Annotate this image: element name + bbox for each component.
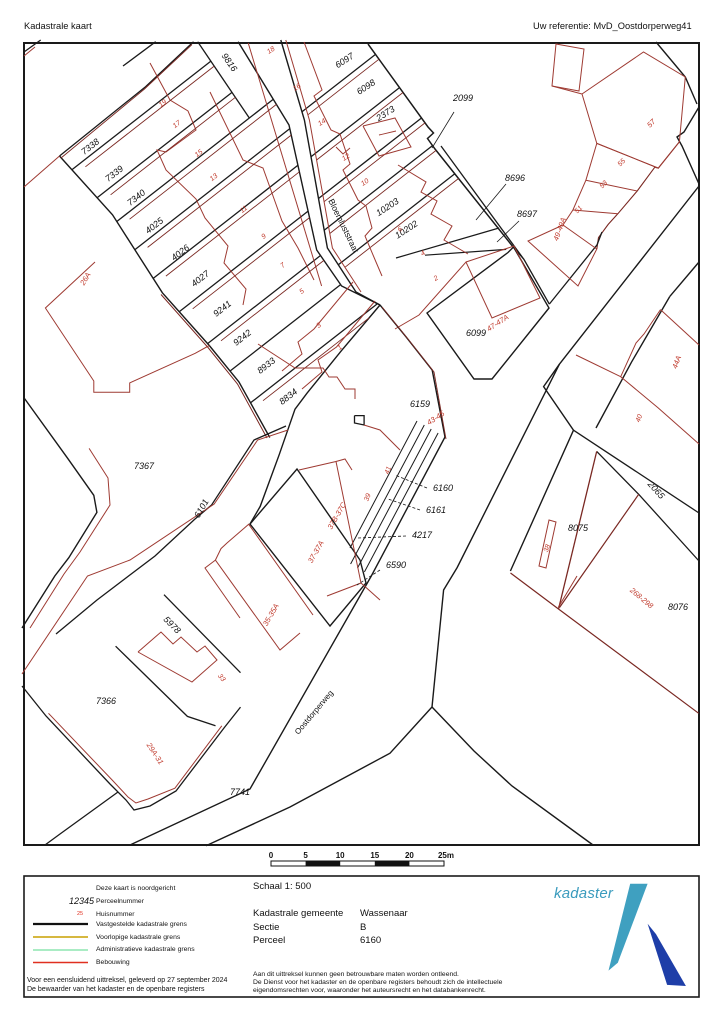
svg-text:268-298: 268-298 [627, 585, 655, 611]
svg-text:8696: 8696 [505, 173, 525, 183]
svg-text:10: 10 [336, 851, 345, 860]
svg-text:5: 5 [298, 288, 305, 296]
svg-text:7339: 7339 [103, 164, 125, 184]
svg-text:15: 15 [194, 149, 205, 159]
svg-text:37-37A: 37-37A [306, 539, 326, 564]
svg-text:7340: 7340 [125, 188, 147, 208]
svg-text:18: 18 [266, 46, 276, 56]
svg-text:2065: 2065 [645, 478, 667, 501]
svg-text:39: 39 [363, 493, 372, 503]
svg-text:9816: 9816 [220, 51, 240, 73]
svg-text:5: 5 [303, 851, 308, 860]
svg-text:0: 0 [269, 851, 274, 860]
svg-text:4027: 4027 [189, 268, 212, 289]
svg-text:kadaster: kadaster [554, 885, 614, 902]
svg-text:6099: 6099 [466, 328, 486, 338]
svg-text:15: 15 [370, 851, 379, 860]
svg-text:9: 9 [260, 233, 267, 241]
svg-text:1: 1 [336, 344, 343, 352]
svg-text:4: 4 [420, 250, 427, 258]
svg-text:7367: 7367 [134, 461, 155, 471]
svg-text:7: 7 [279, 261, 287, 270]
svg-text:29A-31: 29A-31 [144, 740, 165, 766]
svg-text:35-35A: 35-35A [261, 602, 281, 627]
svg-text:10203: 10203 [374, 196, 400, 218]
svg-text:8834: 8834 [277, 387, 299, 407]
svg-text:20: 20 [405, 851, 414, 860]
svg-text:8697: 8697 [517, 209, 538, 219]
svg-text:44A: 44A [670, 354, 683, 370]
svg-text:4217: 4217 [412, 530, 433, 540]
svg-text:7338: 7338 [79, 137, 101, 157]
svg-text:8075: 8075 [568, 523, 589, 533]
svg-text:8076: 8076 [668, 602, 688, 612]
svg-text:9241: 9241 [211, 299, 233, 319]
svg-text:40: 40 [635, 414, 644, 424]
svg-text:6160: 6160 [433, 483, 453, 493]
svg-text:7366: 7366 [96, 696, 116, 706]
svg-text:6590: 6590 [386, 560, 406, 570]
svg-text:2: 2 [432, 275, 440, 284]
svg-text:5978: 5978 [162, 614, 183, 635]
svg-text:6097: 6097 [333, 50, 356, 70]
svg-text:19: 19 [158, 99, 169, 109]
svg-text:Oostdorperweg: Oostdorperweg [293, 689, 335, 737]
svg-text:6161: 6161 [426, 505, 446, 515]
svg-text:11: 11 [239, 205, 249, 215]
svg-text:4025: 4025 [143, 215, 166, 236]
svg-text:3: 3 [315, 322, 322, 330]
svg-text:26A: 26A [78, 271, 93, 288]
svg-text:17: 17 [172, 119, 183, 130]
svg-text:25m: 25m [438, 851, 454, 860]
svg-text:8933: 8933 [255, 356, 277, 376]
svg-text:6098: 6098 [355, 77, 377, 96]
svg-text:55: 55 [617, 158, 628, 169]
svg-text:13: 13 [209, 173, 220, 183]
svg-text:33: 33 [216, 673, 226, 684]
svg-text:10: 10 [360, 178, 370, 188]
svg-text:2099: 2099 [452, 93, 473, 103]
svg-text:7741: 7741 [230, 787, 250, 797]
svg-text:53: 53 [599, 180, 610, 191]
svg-text:4026: 4026 [169, 243, 191, 263]
svg-text:6159: 6159 [410, 399, 430, 409]
svg-text:41: 41 [384, 466, 393, 476]
svg-text:51: 51 [574, 205, 585, 216]
svg-text:57: 57 [645, 117, 658, 130]
